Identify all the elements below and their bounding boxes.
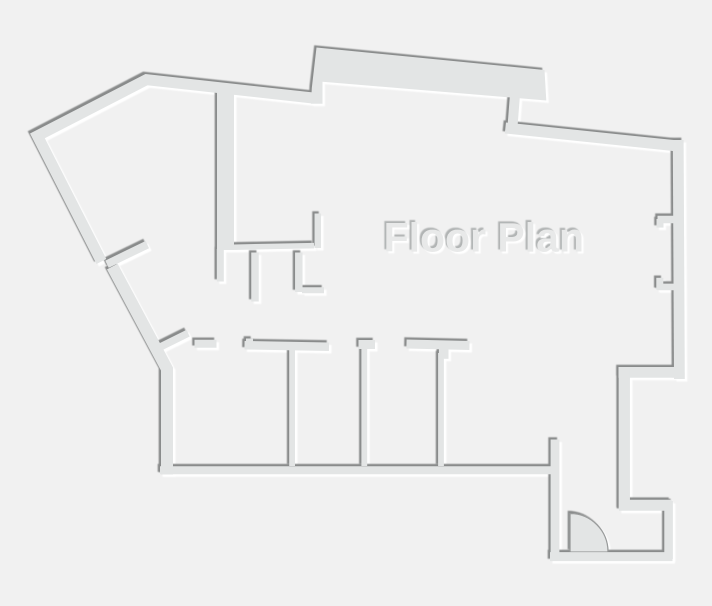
svg-text:Floor Plan: Floor Plan — [384, 215, 584, 261]
